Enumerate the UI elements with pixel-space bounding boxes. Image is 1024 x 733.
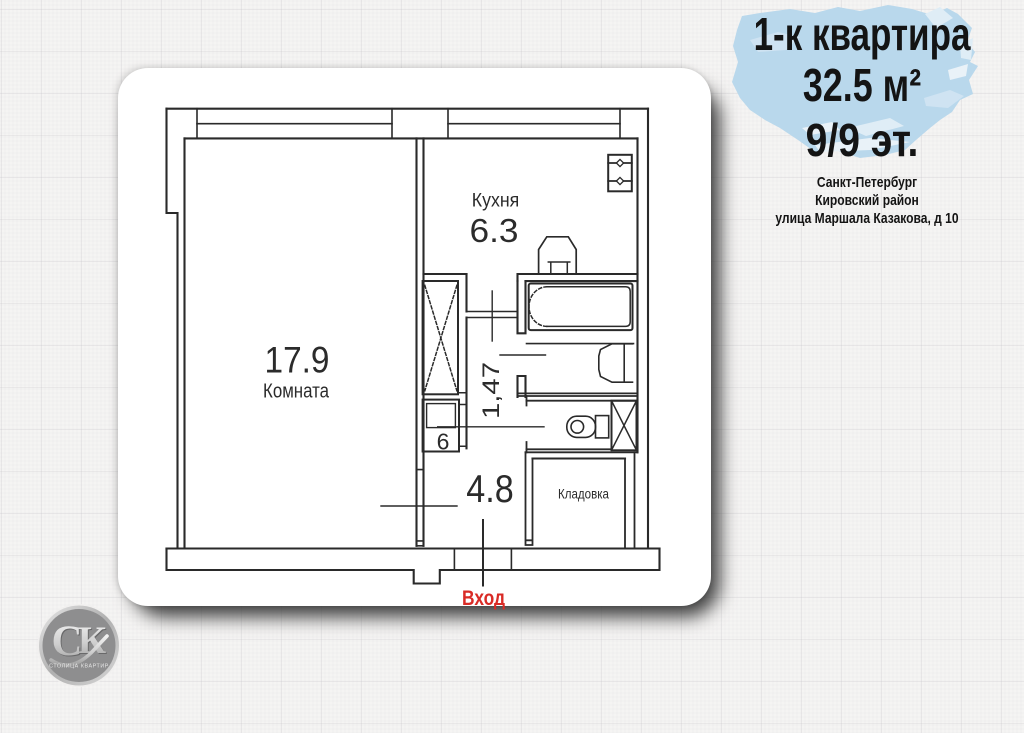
svg-text:СТОЛИЦА КВАРТИР: СТОЛИЦА КВАРТИР [49, 664, 109, 670]
svg-text:6: 6 [437, 429, 450, 455]
svg-text:Комната: Комната [263, 380, 330, 402]
svg-text:Вход: Вход [462, 587, 505, 610]
svg-text:Кухня: Кухня [472, 191, 520, 212]
svg-text:1,47: 1,47 [478, 362, 505, 419]
svg-text:4.8: 4.8 [466, 468, 514, 511]
svg-text:17.9: 17.9 [265, 340, 330, 381]
svg-text:6.3: 6.3 [470, 212, 519, 249]
svg-text:Кладовка: Кладовка [558, 486, 609, 502]
